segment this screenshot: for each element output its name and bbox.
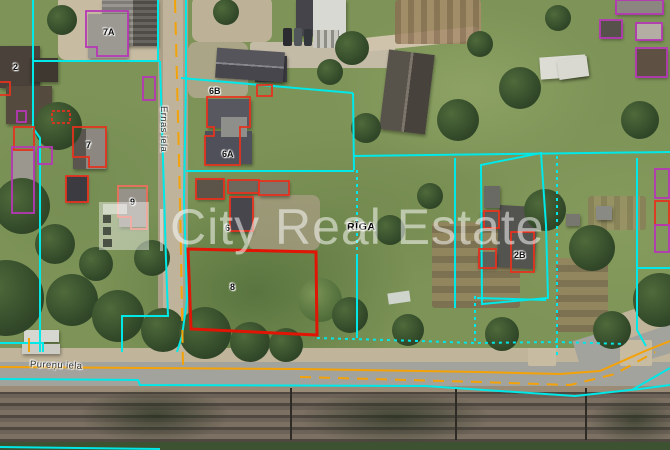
building-outline-purple	[636, 23, 662, 40]
parcel-label-8: 8	[230, 282, 235, 292]
building-outline-purple	[17, 111, 26, 122]
parcel-line-cyan	[0, 343, 43, 352]
building-outline-purple	[143, 77, 155, 100]
building-outline-red	[655, 201, 669, 225]
building-outline-purple	[636, 48, 667, 77]
building-outline-red	[196, 179, 224, 199]
parcel-label-6A: 6A	[222, 149, 234, 159]
parcel-line-cyan	[0, 447, 160, 449]
building-outline-red	[0, 82, 10, 95]
parcel-label-7: 7	[86, 140, 91, 150]
parcel-line-cyan	[0, 379, 670, 396]
parcel-line-cyan	[353, 93, 354, 170]
building-outline-purple	[655, 225, 669, 252]
watermark-logo-roof	[103, 204, 127, 214]
parcel-line-cyan	[637, 158, 646, 346]
parcel-lines-cyan-dotted	[317, 156, 625, 358]
building-outline-purple	[616, 0, 663, 14]
street-label-vertical: Ernas iela	[158, 106, 169, 196]
parcel-line-cyan	[354, 152, 670, 156]
road-centerline-orange	[300, 352, 655, 385]
watermark-logo-window	[103, 239, 112, 247]
building-outline-red	[259, 181, 289, 195]
building-outline-purple	[655, 169, 669, 198]
watermark-logo-window	[103, 227, 111, 235]
street-label-bottom: Pureņu iela	[30, 359, 83, 372]
building-outline-red	[66, 176, 88, 202]
watermark-logo	[99, 202, 149, 250]
satellite-map: 2 7A 7 6B 6A 9 6 8 2B RĪGA Ernas iela Pu…	[0, 0, 670, 450]
watermark-text: City Real Estate	[170, 198, 544, 256]
parcel-label-2: 2	[13, 62, 18, 72]
building-outline-purple	[12, 147, 34, 213]
watermark-logo-window	[103, 215, 111, 223]
building-outline-red	[228, 180, 259, 193]
parcel-label-7A: 7A	[103, 27, 115, 37]
road-centerline-orange	[175, 0, 183, 365]
building-outline-red	[52, 111, 70, 123]
parcel-label-6B: 6B	[209, 86, 221, 96]
road-lines-orange	[0, 0, 670, 385]
watermark-divider	[160, 209, 163, 251]
featured-parcel-outline	[188, 249, 317, 335]
parcel-line-dotted	[317, 338, 625, 344]
building-outline-purple	[600, 20, 622, 38]
road-edge-orange	[0, 341, 670, 374]
